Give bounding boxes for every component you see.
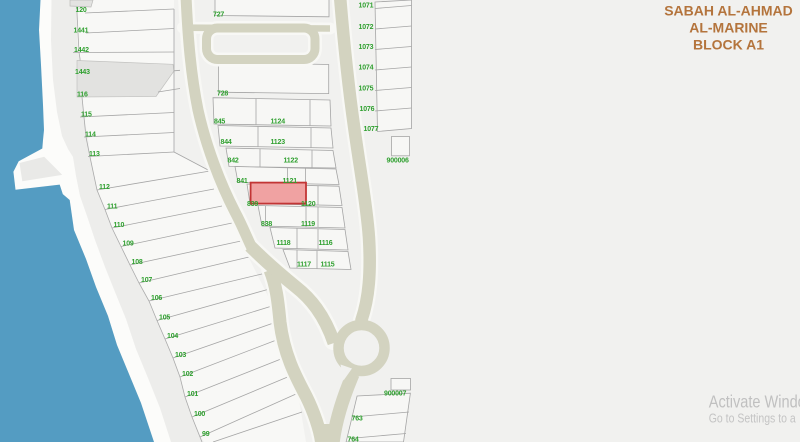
svg-text:845: 845 — [214, 118, 225, 125]
svg-text:842: 842 — [228, 158, 239, 165]
svg-text:1118: 1118 — [277, 240, 291, 247]
svg-text:115: 115 — [81, 112, 92, 119]
svg-text:113: 113 — [89, 151, 100, 158]
svg-text:1443: 1443 — [75, 69, 90, 76]
svg-text:1123: 1123 — [271, 139, 286, 146]
svg-text:1441: 1441 — [74, 28, 89, 35]
svg-text:900007: 900007 — [384, 391, 406, 398]
svg-text:727: 727 — [213, 12, 224, 19]
svg-text:1124: 1124 — [271, 118, 286, 125]
svg-text:110: 110 — [114, 222, 125, 229]
svg-text:728: 728 — [217, 91, 228, 98]
svg-text:1116: 1116 — [319, 240, 333, 247]
svg-text:1115: 1115 — [321, 262, 335, 269]
svg-text:900006: 900006 — [387, 157, 409, 164]
svg-text:1119: 1119 — [301, 221, 315, 228]
svg-text:120: 120 — [76, 7, 87, 14]
svg-text:763: 763 — [352, 416, 363, 423]
svg-text:106: 106 — [151, 295, 162, 302]
svg-text:1076: 1076 — [360, 106, 375, 113]
svg-text:112: 112 — [99, 184, 110, 191]
svg-text:1074: 1074 — [359, 65, 374, 72]
svg-text:SABAH AL-AHMAD: SABAH AL-AHMAD — [664, 3, 793, 19]
svg-text:AL-MARINE: AL-MARINE — [689, 20, 768, 36]
svg-text:114: 114 — [85, 131, 96, 138]
svg-text:99: 99 — [202, 431, 210, 438]
svg-text:844: 844 — [221, 139, 232, 146]
svg-text:1073: 1073 — [359, 44, 374, 51]
svg-text:107: 107 — [141, 277, 152, 284]
svg-text:1075: 1075 — [359, 85, 374, 92]
svg-text:105: 105 — [159, 315, 170, 322]
svg-text:838: 838 — [261, 221, 272, 228]
svg-text:1071: 1071 — [359, 3, 374, 10]
svg-text:103: 103 — [175, 352, 186, 359]
svg-text:1120: 1120 — [301, 201, 316, 208]
svg-text:1072: 1072 — [359, 24, 374, 31]
svg-text:1122: 1122 — [284, 158, 299, 165]
svg-text:1117: 1117 — [297, 262, 311, 269]
svg-text:111: 111 — [107, 204, 118, 211]
svg-text:1077: 1077 — [364, 126, 379, 133]
svg-text:116: 116 — [77, 91, 88, 98]
svg-text:1442: 1442 — [74, 47, 89, 54]
svg-text:1121: 1121 — [283, 178, 298, 185]
svg-text:Activate Windo: Activate Windo — [709, 392, 800, 412]
svg-text:839: 839 — [247, 201, 258, 208]
svg-text:764: 764 — [348, 437, 359, 442]
svg-text:BLOCK A1: BLOCK A1 — [693, 37, 764, 53]
svg-text:109: 109 — [123, 241, 134, 248]
svg-text:101: 101 — [187, 391, 198, 398]
svg-text:102: 102 — [182, 371, 193, 378]
svg-text:841: 841 — [237, 178, 248, 185]
svg-text:104: 104 — [167, 333, 178, 340]
svg-text:100: 100 — [194, 411, 205, 418]
svg-text:108: 108 — [132, 259, 143, 266]
svg-text:Go to Settings to a: Go to Settings to a — [709, 410, 797, 425]
